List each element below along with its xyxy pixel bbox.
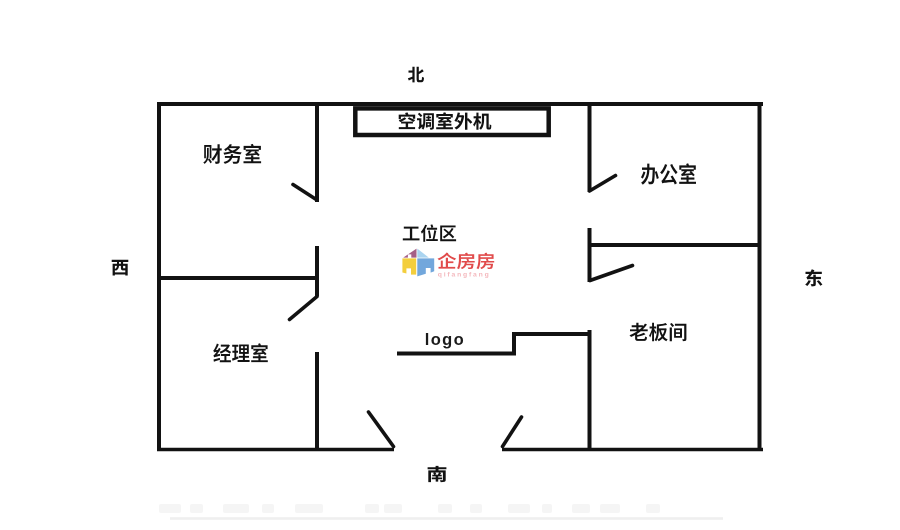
svg-text:qifangfang: qifangfang bbox=[438, 271, 491, 278]
svg-text:logo: logo bbox=[425, 331, 465, 349]
